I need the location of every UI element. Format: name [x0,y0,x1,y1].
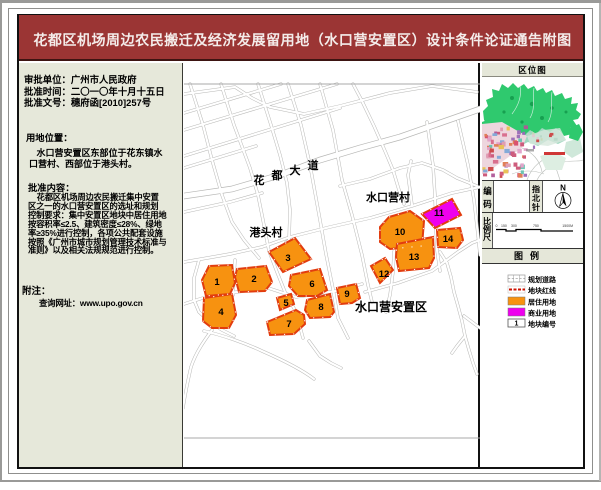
svg-text:750: 750 [533,224,539,228]
svg-text:8: 8 [318,302,323,313]
svg-text:地块编号: 地块编号 [528,320,556,329]
svg-text:地块红线: 地块红线 [528,286,556,295]
svg-text:0: 0 [496,224,498,228]
svg-text:商业用地: 商业用地 [528,309,556,318]
svg-text:大: 大 [290,163,301,177]
svg-text:6: 6 [309,279,314,290]
svg-text:11: 11 [434,208,445,219]
svg-text:水口营安置区: 水口营安置区 [355,299,427,314]
svg-text:7: 7 [286,319,291,330]
svg-text:13: 13 [409,252,420,263]
svg-text:300: 300 [511,224,517,228]
svg-text:港头村: 港头村 [250,225,283,239]
svg-text:1500M: 1500M [562,224,573,228]
svg-text:水口营村: 水口营村 [366,190,410,204]
svg-text:N: N [560,184,566,193]
svg-text:1: 1 [515,321,519,328]
svg-text:10: 10 [395,227,406,238]
svg-text:道: 道 [308,158,319,172]
svg-text:1: 1 [214,277,220,288]
svg-text:150: 150 [501,224,507,228]
svg-text:花: 花 [254,173,265,187]
svg-text:规划道路: 规划道路 [528,275,557,284]
svg-text:4: 4 [218,307,224,318]
svg-text:2: 2 [251,274,256,285]
svg-text:居住用地: 居住用地 [528,298,556,307]
svg-text:都: 都 [271,168,283,182]
svg-text:5: 5 [283,298,289,309]
svg-text:9: 9 [344,289,349,300]
svg-text:12: 12 [379,269,390,280]
svg-text:3: 3 [285,253,290,264]
svg-text:14: 14 [443,234,454,245]
